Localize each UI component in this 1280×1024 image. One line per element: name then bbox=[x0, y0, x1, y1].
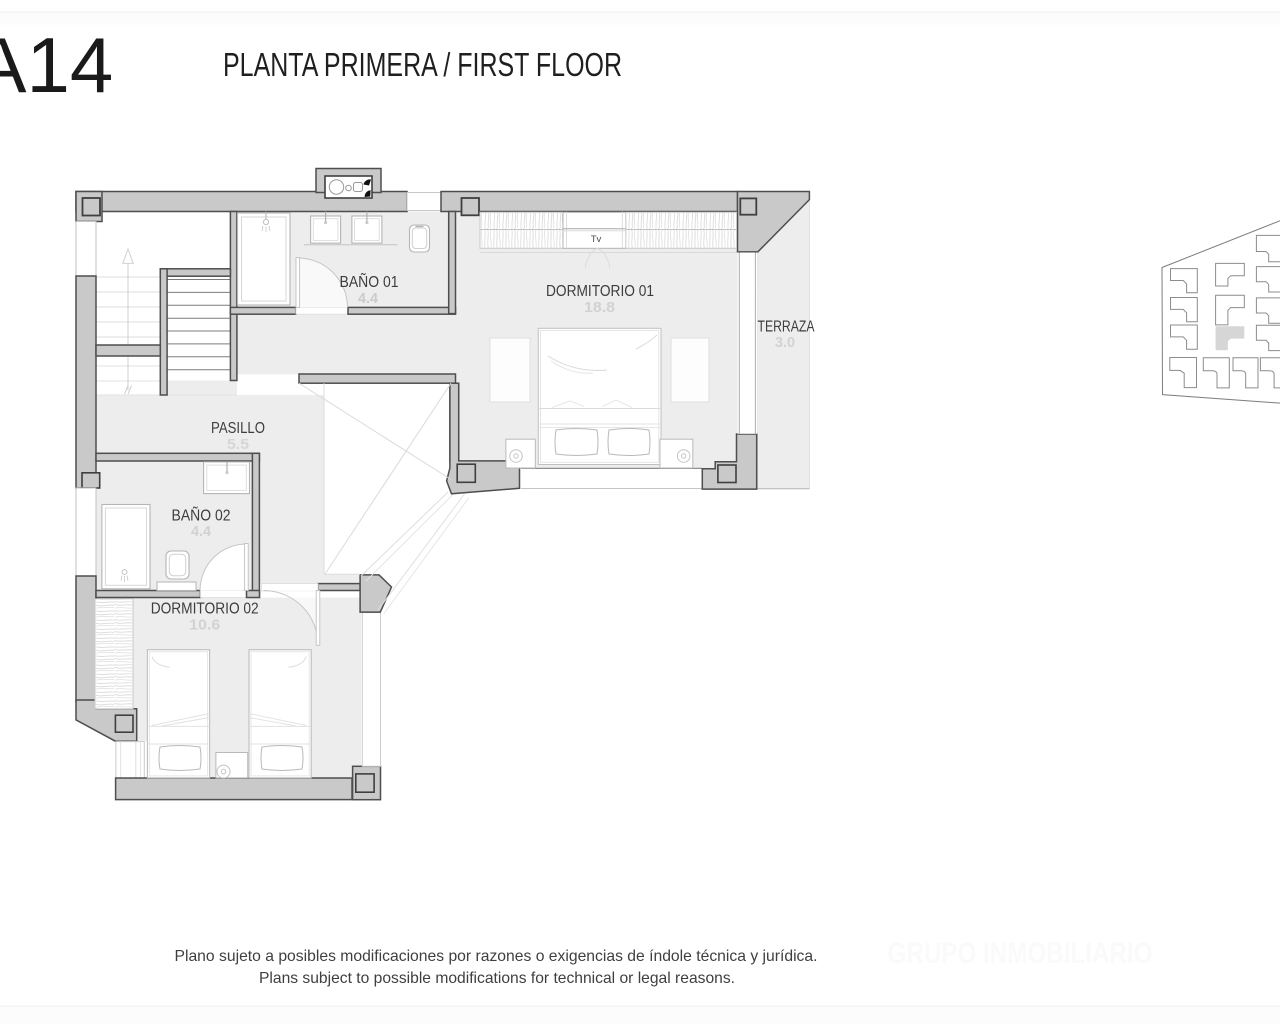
svg-text:GRUPO INMOBILIARIO: GRUPO INMOBILIARIO bbox=[888, 937, 1153, 970]
svg-text:DORMITORIO 01: DORMITORIO 01 bbox=[546, 283, 654, 300]
svg-text:BAÑO 01: BAÑO 01 bbox=[340, 274, 399, 291]
svg-text:18.8: 18.8 bbox=[584, 299, 615, 316]
svg-text:Tv: Tv bbox=[591, 234, 602, 245]
svg-text:BAÑO 02: BAÑO 02 bbox=[172, 508, 231, 525]
svg-text:Plans subject to possible modi: Plans subject to possible modifications … bbox=[259, 970, 735, 987]
svg-text:4.4: 4.4 bbox=[191, 523, 212, 540]
svg-text:10.6: 10.6 bbox=[189, 617, 220, 634]
svg-text:4.4: 4.4 bbox=[358, 290, 379, 307]
svg-text:Plano sujeto a posibles modifi: Plano sujeto a posibles modificaciones p… bbox=[175, 948, 818, 965]
svg-text:3.0: 3.0 bbox=[775, 334, 795, 351]
svg-text:5.5: 5.5 bbox=[227, 436, 249, 453]
svg-text:A14: A14 bbox=[0, 21, 113, 109]
svg-text:DORMITORIO 02: DORMITORIO 02 bbox=[151, 601, 259, 618]
svg-text:PASILLO: PASILLO bbox=[211, 420, 265, 437]
svg-text:TERRAZA: TERRAZA bbox=[758, 319, 816, 336]
svg-text:PLANTA PRIMERA / FIRST FLOOR: PLANTA PRIMERA / FIRST FLOOR bbox=[223, 46, 622, 83]
